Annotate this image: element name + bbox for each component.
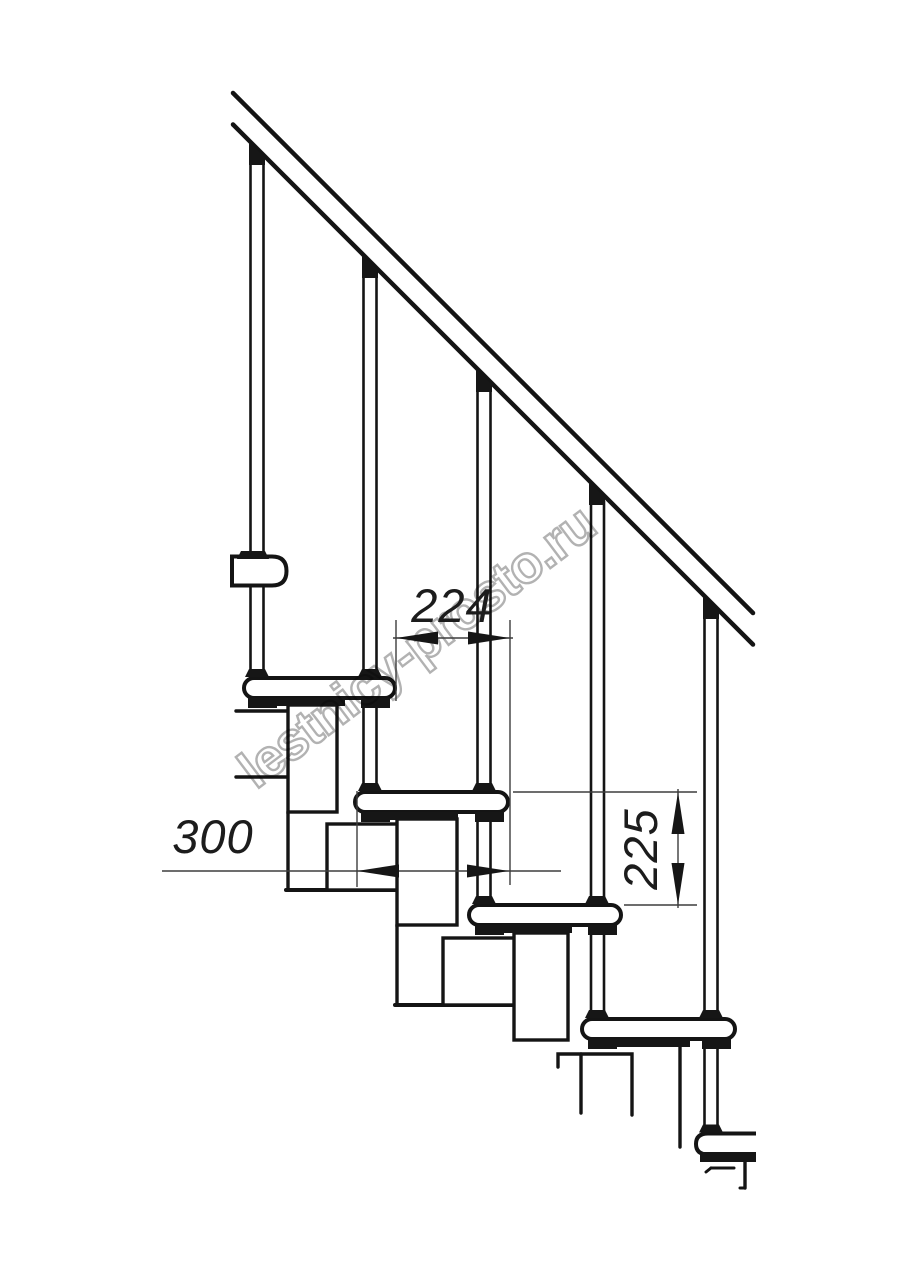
baluster xyxy=(251,162,264,676)
baluster-foot-wedge xyxy=(585,896,609,904)
baluster-foot-wedge xyxy=(472,896,496,904)
upper-flight-tread-end xyxy=(232,557,287,586)
baluster xyxy=(705,616,718,1133)
under-tread-pad xyxy=(588,1039,617,1049)
module-knee-open xyxy=(558,1054,632,1115)
module-column xyxy=(514,933,568,1040)
module-top-plate xyxy=(388,812,458,820)
module-top-plate xyxy=(615,1039,690,1047)
baluster-foot-wedge xyxy=(472,783,496,791)
baluster-foot-wedge xyxy=(585,1010,609,1018)
arrowhead-down xyxy=(672,863,685,905)
baluster-foot-wedge xyxy=(358,783,382,791)
module-edge xyxy=(706,1168,711,1172)
under-tread-pad xyxy=(361,812,390,822)
watermark-text: lestnicy-prosto.ru xyxy=(228,494,607,800)
baluster xyxy=(591,502,604,1019)
under-tread-pad xyxy=(702,1039,731,1049)
tread xyxy=(469,905,621,925)
handrail-top-line xyxy=(233,93,753,613)
baluster xyxy=(478,389,491,906)
under-tread-pad xyxy=(475,812,504,822)
dimension-value-depth: 300 xyxy=(172,810,253,863)
under-tread-pad xyxy=(248,698,277,708)
baluster-foot-wedge xyxy=(237,551,269,559)
dimension-value-rise: 225 xyxy=(614,808,667,890)
dimension-value-run: 224 xyxy=(410,579,492,632)
tread xyxy=(355,792,508,812)
baluster-foot-wedge xyxy=(699,1125,723,1133)
module-knee xyxy=(327,824,405,890)
module-top-plate xyxy=(700,1152,756,1162)
module-top-plate xyxy=(502,924,572,933)
staircase-drawing: lestnicy-prosto.ru 224 300 225 xyxy=(0,0,914,1280)
tread-partial xyxy=(696,1134,756,1155)
drawing-canvas: lestnicy-prosto.ru 224 300 225 xyxy=(0,0,914,1280)
under-tread-pad xyxy=(588,925,617,935)
under-tread-pad xyxy=(475,925,504,935)
module-column xyxy=(397,819,457,925)
baluster-foot-wedge xyxy=(245,669,269,677)
module-knee xyxy=(443,938,517,1005)
tread xyxy=(582,1019,735,1039)
arrowhead-up xyxy=(672,792,685,834)
baluster-foot-wedge xyxy=(699,1010,723,1018)
